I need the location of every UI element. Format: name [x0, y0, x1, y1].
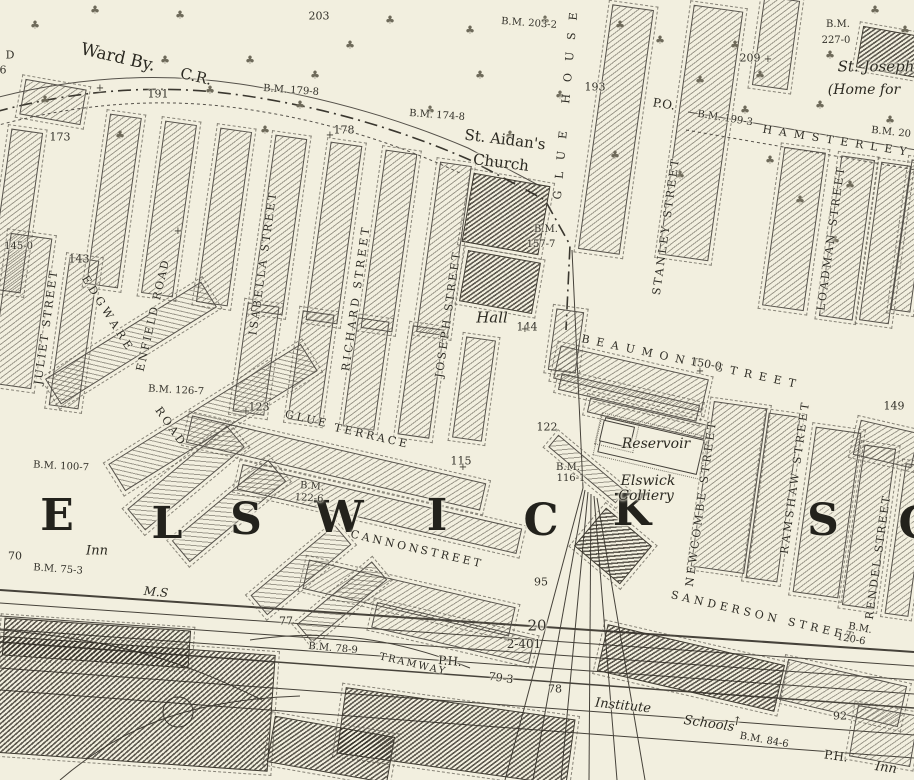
number-label: 123: [249, 402, 270, 413]
number-label: 2-401: [507, 638, 542, 650]
tree-icon: ♣: [115, 129, 125, 142]
map-canvas[interactable]: ♣♣♣♣♣♣♣♣♣♣♣♣♣♣♣♣♣♣♣♣♣♣♣♣♣♣♣♣♣♣♣♣♣♣♣♣ELSW…: [0, 0, 914, 780]
place-label: Inn: [874, 760, 897, 776]
number-label: 203: [309, 11, 330, 22]
number-label: 193: [585, 82, 606, 93]
tree-icon: ♣: [615, 19, 625, 32]
district-letter: C: [898, 502, 914, 546]
tree-icon: ♣: [345, 39, 355, 52]
tree-icon: ♣: [610, 149, 620, 162]
survey-mark-icon: +: [459, 463, 467, 473]
benchmark-label: 116-1: [557, 474, 586, 484]
survey-mark-icon: +: [764, 55, 772, 65]
survey-mark-icon: +: [521, 325, 529, 335]
number-label: 149: [884, 401, 905, 412]
place-label: M.S: [143, 585, 168, 599]
tree-icon: ♣: [475, 69, 485, 82]
number-label: 78: [548, 684, 562, 695]
number-label: 20: [527, 619, 546, 634]
district-letter: S: [230, 498, 262, 542]
tree-icon: ♣: [825, 49, 835, 62]
tree-icon: ♣: [295, 99, 305, 112]
number-label: 122: [537, 422, 558, 433]
tree-icon: ♣: [815, 99, 825, 112]
benchmark-label: B.M.: [556, 463, 580, 473]
place-label: P.H.: [438, 654, 463, 668]
number-label: D: [6, 50, 15, 61]
number-label: 6: [0, 65, 7, 76]
place-label: Inn: [86, 545, 108, 558]
tree-icon: ♣: [885, 114, 895, 127]
place-label: P.O.: [652, 96, 676, 111]
survey-mark-icon: +: [96, 84, 104, 94]
tree-icon: ♣: [900, 24, 910, 37]
tree-icon: ♣: [730, 39, 740, 52]
tree-icon: ♣: [175, 9, 185, 22]
tree-icon: ♣: [30, 19, 40, 32]
district-letter: I: [427, 494, 448, 538]
benchmark-label: 227-0: [822, 36, 851, 46]
place-label: (Home for: [828, 83, 900, 97]
tree-icon: ♣: [90, 4, 100, 17]
number-label: 209: [740, 53, 761, 64]
number-label: 143: [69, 254, 90, 265]
tree-icon: ♣: [160, 54, 170, 67]
place-label: Colliery: [618, 489, 673, 503]
number-label: 191: [148, 89, 169, 100]
building-block: [849, 705, 914, 767]
number-label: 77: [279, 616, 293, 627]
district-letter: S: [807, 499, 839, 543]
benchmark-label: 157-7: [527, 240, 556, 250]
survey-mark-icon: +: [174, 227, 182, 237]
number-label: 70: [8, 551, 22, 562]
benchmark-label: B.M.: [300, 481, 325, 493]
tree-icon: ♣: [845, 179, 855, 192]
benchmark-label: B.M. 145-0: [0, 242, 33, 252]
district-letter: C: [523, 499, 558, 543]
place-label: Reservoir: [622, 437, 691, 451]
survey-mark-icon: +: [242, 407, 250, 417]
benchmark-label: B.M.: [534, 225, 558, 235]
place-label: Elswick: [621, 474, 676, 488]
tree-icon: ♣: [695, 74, 705, 87]
number-label: 92: [833, 711, 847, 722]
tree-icon: ♣: [755, 69, 765, 82]
number-label: 95: [534, 577, 548, 588]
tree-icon: ♣: [465, 24, 475, 37]
tree-icon: ♣: [385, 14, 395, 27]
tree-icon: ♣: [795, 194, 805, 207]
survey-mark-icon: ↑: [731, 714, 743, 728]
tree-icon: ♣: [870, 4, 880, 17]
tree-icon: ♣: [245, 54, 255, 67]
tree-icon: ♣: [765, 154, 775, 167]
survey-mark-icon: +: [326, 131, 334, 141]
place-label: Hall: [476, 311, 508, 326]
tree-icon: ♣: [40, 94, 50, 107]
number-label: 79-3: [488, 671, 514, 685]
district-letter: E: [40, 494, 74, 538]
district-letter: L: [152, 502, 183, 546]
survey-mark-icon: +: [696, 367, 704, 377]
tree-icon: ♣: [655, 34, 665, 47]
benchmark-label: 122-6: [294, 493, 323, 505]
tree-icon: ♣: [310, 69, 320, 82]
number-label: 173: [50, 132, 71, 143]
benchmark-label: B.M.: [826, 20, 850, 30]
number-label: 178: [334, 125, 355, 136]
tree-icon: ♣: [260, 124, 270, 137]
place-label: St. Joseph: [838, 60, 914, 75]
place-label: P.H.: [823, 748, 848, 763]
